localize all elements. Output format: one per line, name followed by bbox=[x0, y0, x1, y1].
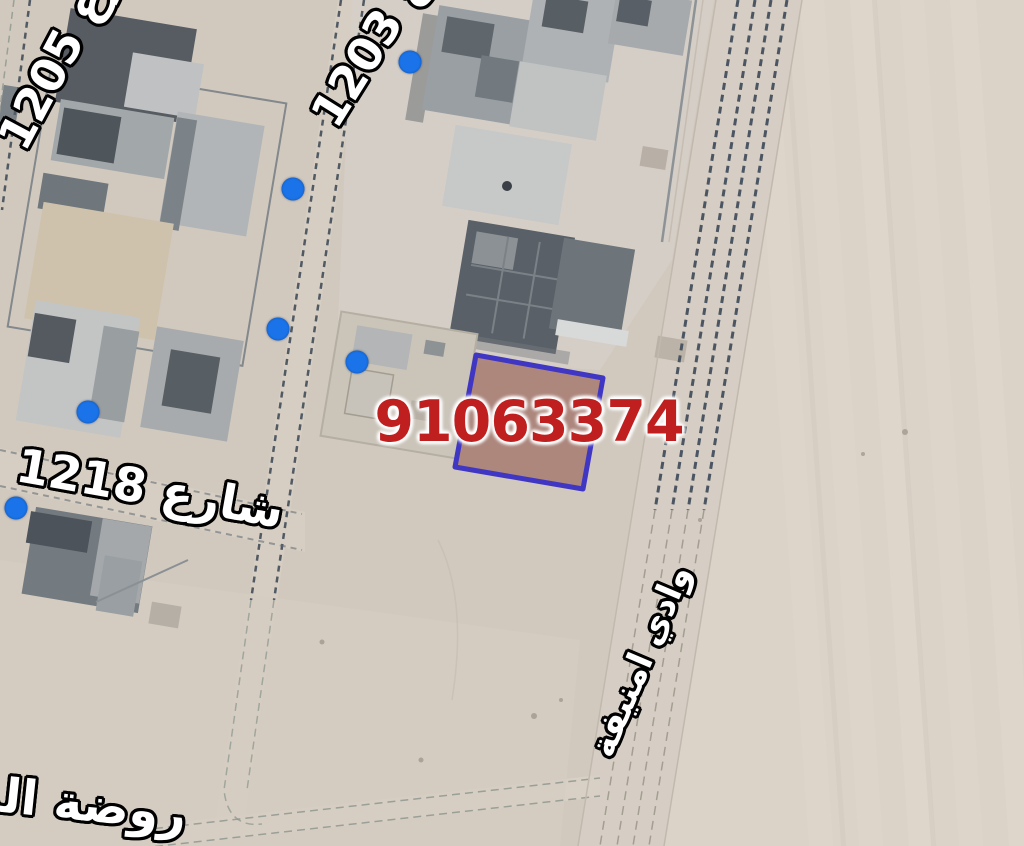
map-marker[interactable] bbox=[5, 497, 28, 520]
map-marker[interactable] bbox=[346, 351, 369, 374]
map-marker[interactable] bbox=[77, 401, 100, 424]
parcel-id-number: 91063374 bbox=[374, 389, 683, 455]
satellite-map[interactable]: شارع 1205 شارع 1203 شارع 1218 وادي امنيف… bbox=[0, 0, 1024, 846]
map-marker[interactable] bbox=[267, 318, 290, 341]
map-marker[interactable] bbox=[282, 178, 305, 201]
map-marker[interactable] bbox=[399, 51, 422, 74]
